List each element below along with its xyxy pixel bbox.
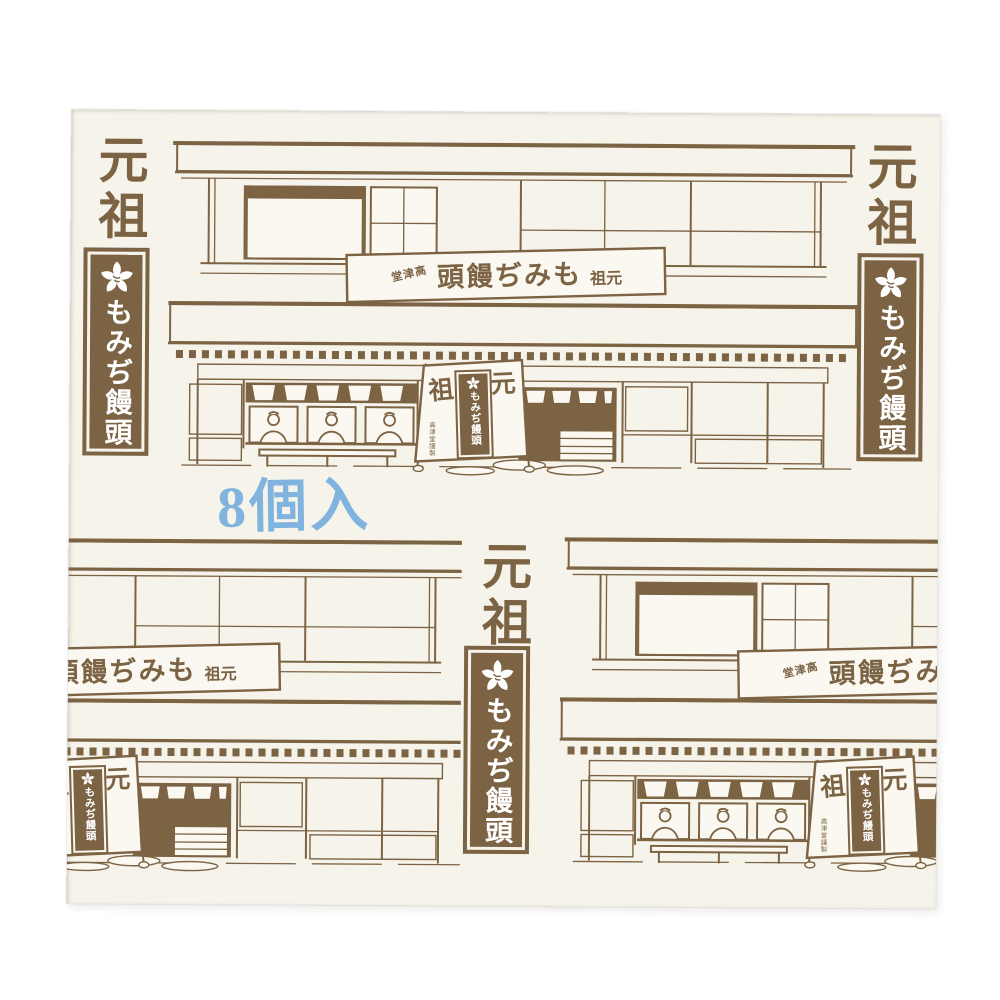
product-photo: 元祖 元祖 元祖 もみぢ饅頭 もみぢ饅頭 もみぢ饅頭 8個入: [0, 0, 1000, 1000]
sign-shop-name: 堂津高: [390, 265, 430, 285]
shop-sign-board: 堂津高 頭饅ぢみも 祖元: [350, 246, 663, 299]
maple-blossom-icon: [478, 658, 515, 695]
standing-banner-text: もみぢ饅頭: [468, 391, 480, 446]
momiji-manju-banner-left: もみぢ饅頭: [82, 247, 149, 455]
standing-banner-logo: もみぢ饅頭: [71, 767, 106, 853]
maple-blossom-icon: [857, 772, 872, 787]
shop-sign-board: 堂津高 頭饅ぢみも 祖元: [67, 642, 278, 695]
banner-text: もみぢ饅頭: [101, 298, 130, 448]
shopfront-art: 堂津高 頭饅ぢみも 祖元 祖 元 もみぢ饅頭 高津堂謹製: [67, 533, 462, 873]
banner-text: もみぢ饅頭: [875, 303, 904, 453]
banner-fine-print: 高津堂謹製: [817, 818, 827, 853]
genso-stamp-top-left: 元祖: [93, 133, 146, 245]
shopfront-art: 堂津高 頭饅ぢみも 祖元 祖 元 もみぢ饅頭 高津堂謹製: [559, 532, 938, 874]
maple-blossom-icon: [465, 376, 480, 391]
manju-box-package: 元祖 元祖 元祖 もみぢ饅頭 もみぢ饅頭 もみぢ饅頭 8個入: [67, 109, 941, 908]
standing-banner-left-char: 祖: [428, 377, 455, 404]
shopfront-illustration-bottom-right: 堂津高 頭饅ぢみも 祖元 祖 元 もみぢ饅頭 高津堂謹製: [559, 532, 938, 878]
shopfront-illustration-bottom-left: 堂津高 頭饅ぢみも 祖元 祖 元 もみぢ饅頭 高津堂謹製: [67, 533, 462, 877]
maple-blossom-icon: [98, 260, 135, 297]
maple-blossom-icon: [872, 265, 909, 302]
standing-banner-left-char: 祖: [819, 774, 846, 801]
sign-title: 頭饅ぢみも: [67, 647, 197, 689]
shopfront-line-art: [67, 533, 462, 873]
genso-stamp-bottom-center: 元祖: [476, 540, 529, 652]
sign-suffix: 祖元: [204, 660, 237, 685]
sign-title: 頭饅ぢみも: [828, 648, 938, 690]
momiji-manju-banner-right: もみぢ饅頭: [856, 253, 923, 461]
sign-shop-name: 堂津高: [782, 662, 822, 682]
banner-panel: もみぢ饅頭: [470, 653, 523, 847]
standing-banner-text: もみぢ饅頭: [83, 786, 95, 841]
shopfront-art: 堂津高 頭饅ぢみも 祖元 祖 元 もみぢ饅頭 高津堂謹製: [167, 136, 859, 478]
standing-banner-right-char: 元: [882, 768, 908, 794]
maple-blossom-icon: [80, 771, 95, 786]
shopfront-line-art: [167, 136, 859, 478]
standing-banner-logo: もみぢ饅頭: [456, 371, 491, 457]
momiji-manju-banner-bottom: もみぢ饅頭: [463, 646, 530, 854]
standing-banner-right-char: 元: [490, 371, 516, 397]
banner-fine-print: 高津堂謹製: [425, 422, 435, 457]
shop-sign-board: 堂津高 頭饅ぢみも 祖元: [742, 643, 938, 696]
banner-panel: もみぢ饅頭: [89, 254, 142, 448]
banner-panel: もみぢ饅頭: [863, 260, 916, 454]
sign-title: 頭饅ぢみも: [436, 252, 582, 294]
standing-banner-logo: もみぢ饅頭: [848, 768, 883, 854]
genso-stamp-top-right: 元祖: [862, 140, 915, 252]
banner-text: もみぢ饅頭: [482, 696, 511, 846]
standing-banner-right-char: 元: [105, 767, 131, 793]
standing-banner-text: もみぢ饅頭: [860, 787, 872, 842]
shopfront-illustration-top: 堂津高 頭饅ぢみも 祖元 祖 元 もみぢ饅頭 高津堂謹製: [167, 136, 859, 480]
sign-suffix: 祖元: [590, 264, 623, 289]
